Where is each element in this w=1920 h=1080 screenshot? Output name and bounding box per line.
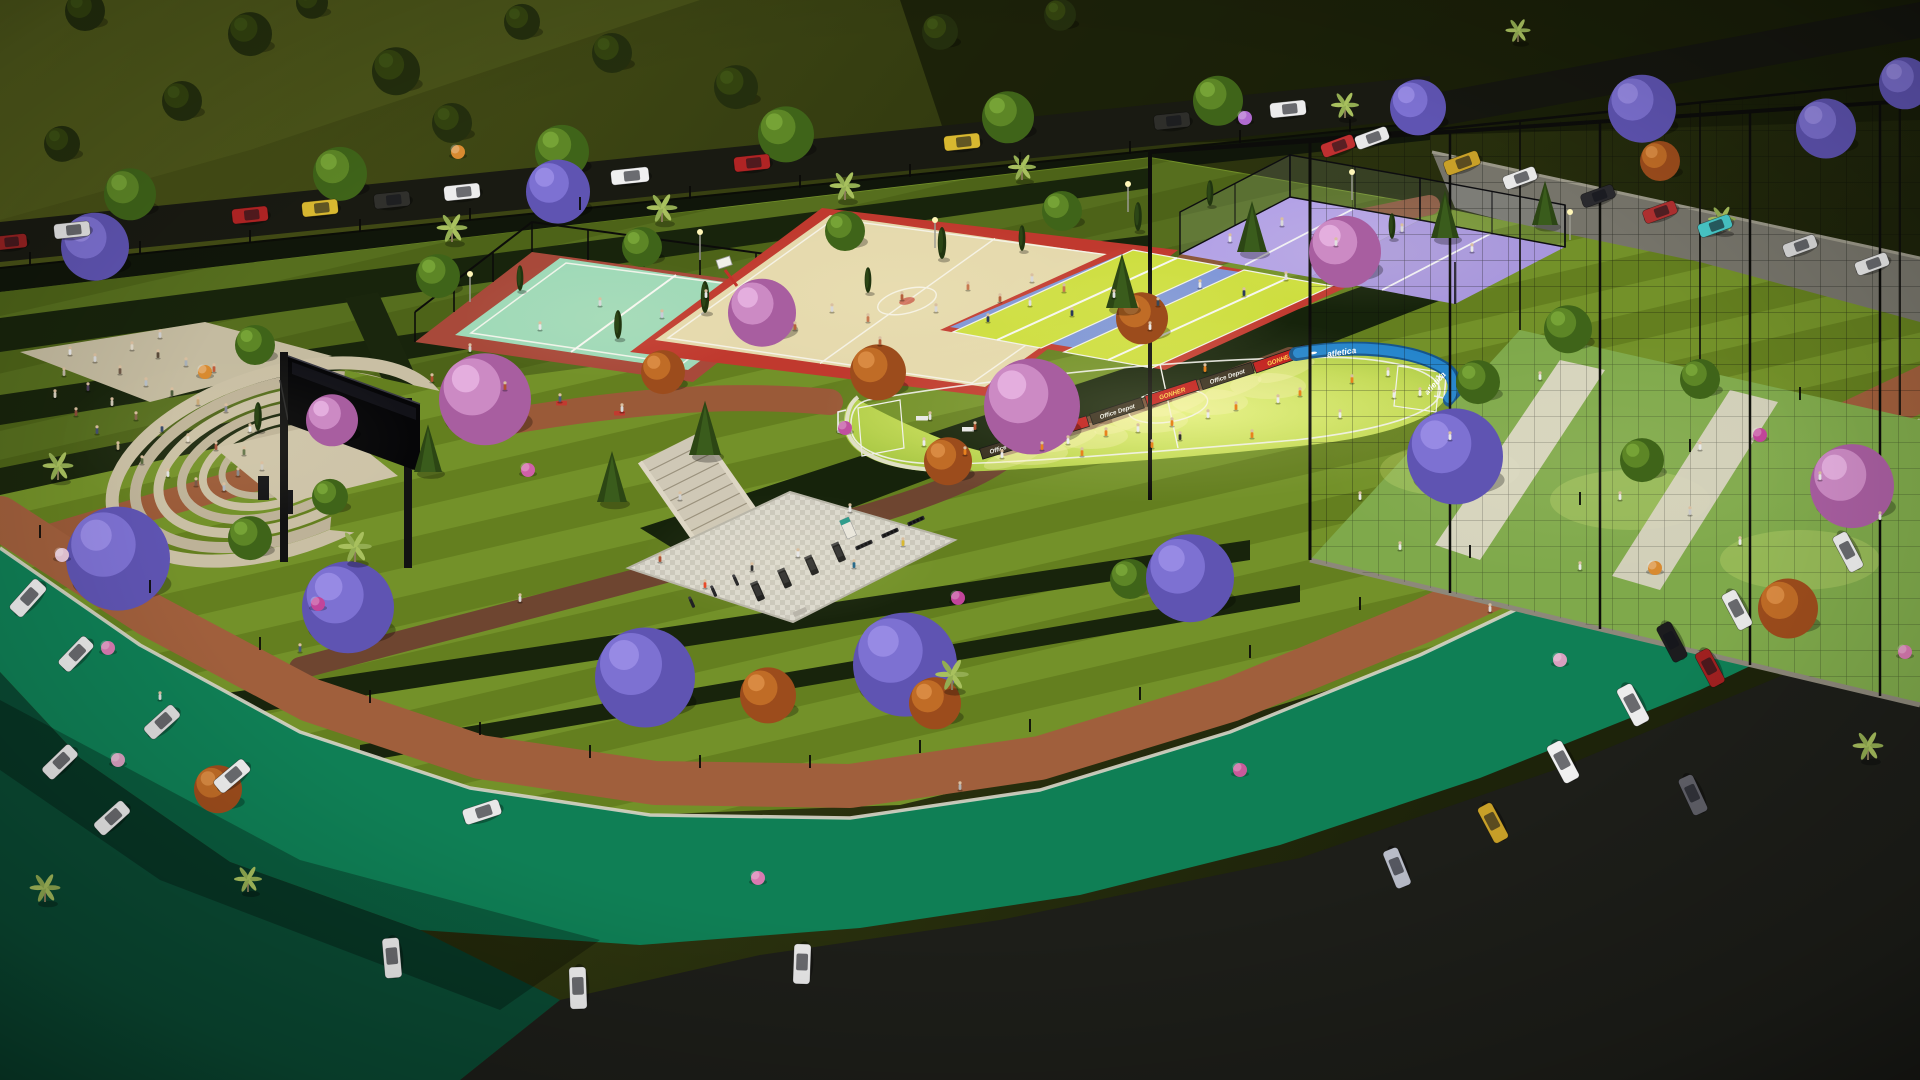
sports-park-render: Office DepotGONHEROffice DepotGONHEROffi… [0,0,1920,1080]
vignette [0,0,1920,1080]
scene-svg: Office DepotGONHEROffice DepotGONHEROffi… [0,0,1920,1080]
